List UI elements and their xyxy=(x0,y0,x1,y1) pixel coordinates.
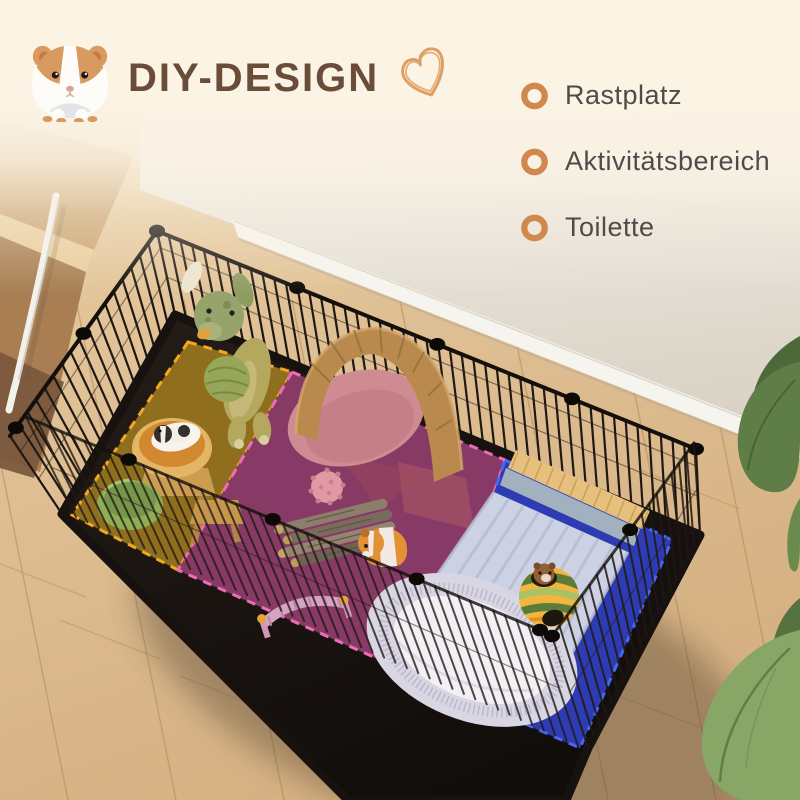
feature-item-rastplatz: Rastplatz xyxy=(518,79,770,112)
feature-item-aktivitaetsbereich: Aktivitätsbereich xyxy=(518,145,770,178)
ring-icon xyxy=(518,211,551,244)
guinea-pig-logo xyxy=(26,34,114,122)
heart-doodle-icon xyxy=(389,41,461,109)
header: DIY-DESIGN xyxy=(26,34,461,122)
feature-label: Aktivitätsbereich xyxy=(565,146,770,177)
page-title: DIY-DESIGN xyxy=(128,56,379,101)
ring-icon xyxy=(518,145,551,178)
feature-item-toilette: Toilette xyxy=(518,211,770,244)
feature-label: Rastplatz xyxy=(565,80,682,111)
feature-label: Toilette xyxy=(565,212,655,243)
ring-icon xyxy=(518,79,551,112)
feature-list: Rastplatz Aktivitätsbereich Toilette xyxy=(518,79,770,277)
product-infographic: DIY-DESIGN Rastplatz Aktivitätsbereich T… xyxy=(0,0,800,800)
